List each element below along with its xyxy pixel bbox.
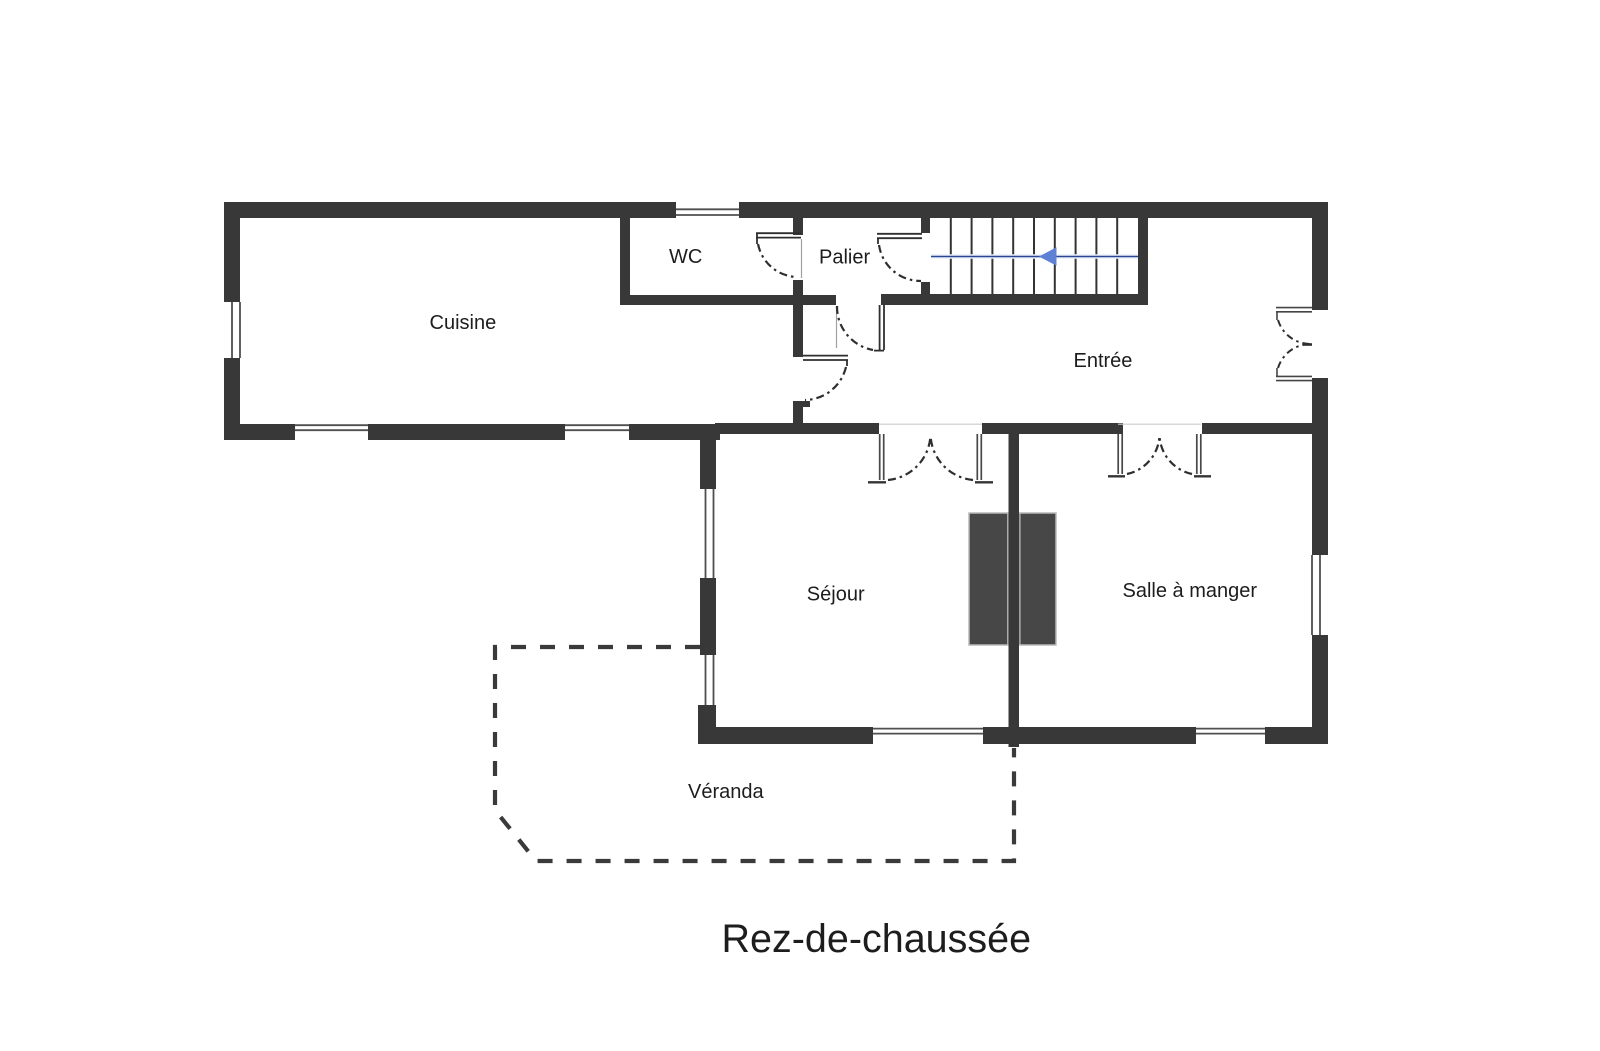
svg-text:Véranda: Véranda [688,781,764,803]
svg-text:Entrée: Entrée [1074,350,1133,372]
svg-text:Rez-de-chaussée: Rez-de-chaussée [722,917,1032,961]
svg-text:Séjour: Séjour [807,584,865,606]
svg-text:Salle à manger: Salle à manger [1123,580,1258,602]
svg-text:Cuisine: Cuisine [430,312,497,334]
svg-text:WC: WC [669,246,702,268]
svg-text:Palier: Palier [819,247,870,269]
